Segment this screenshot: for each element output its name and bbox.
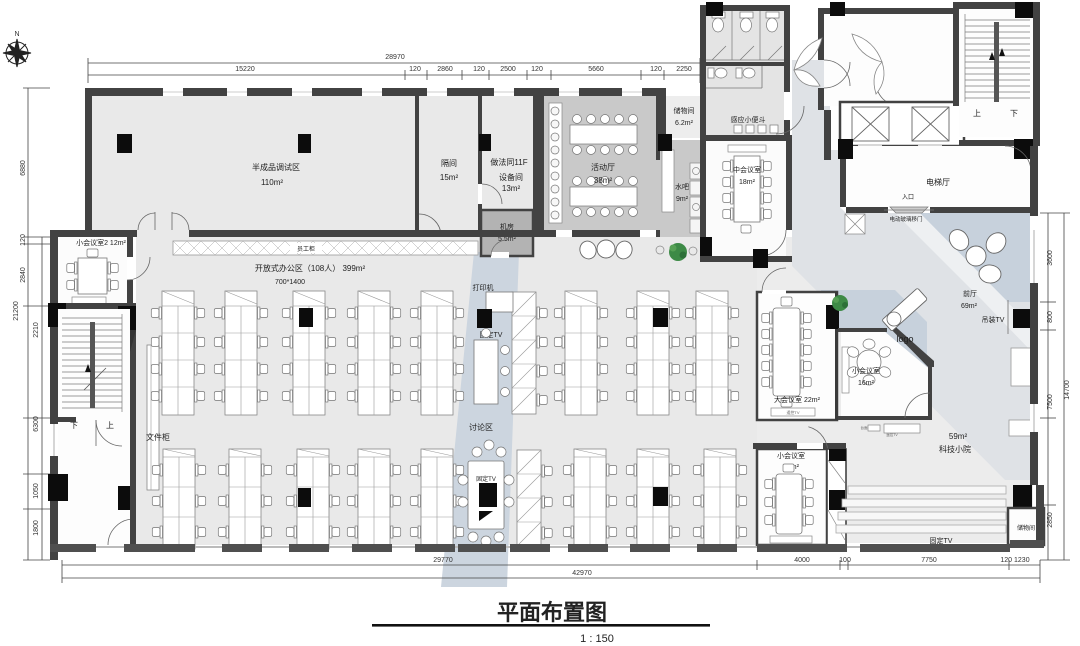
svg-text:110m²: 110m² [261,178,283,187]
svg-text:69m²: 69m² [961,303,978,310]
svg-text:7750: 7750 [921,557,937,564]
svg-text:电梯厅: 电梯厅 [926,177,950,187]
svg-text:做法同11F: 做法同11F [490,157,527,167]
svg-text:中会议室: 中会议室 [733,165,761,174]
svg-text:大会议室 22m²: 大会议室 22m² [774,395,821,404]
svg-text:7500: 7500 [1047,394,1054,410]
svg-text:设备间: 设备间 [499,172,523,182]
svg-text:固定TV: 固定TV [930,536,953,545]
svg-text:29770: 29770 [433,557,453,564]
svg-text:入口: 入口 [902,194,914,201]
svg-text:2250: 2250 [676,66,692,73]
svg-text:38m²: 38m² [594,176,613,185]
svg-text:13m²: 13m² [502,184,521,193]
svg-text:2210: 2210 [33,322,40,338]
svg-text:9m²: 9m² [676,196,689,203]
svg-text:800: 800 [1047,311,1054,323]
svg-text:机房: 机房 [500,222,514,231]
svg-text:开放式办公区（108人） 399m²: 开放式办公区（108人） 399m² [255,263,366,273]
svg-text:半成品调试区: 半成品调试区 [252,162,300,172]
svg-text:700*1400: 700*1400 [275,279,305,286]
svg-text:吊装TV: 吊装TV [982,315,1005,324]
svg-text:固定TV: 固定TV [476,475,496,483]
svg-text:遥控TV: 遥控TV [886,432,898,437]
svg-text:5660: 5660 [588,66,604,73]
svg-text:平面布置图: 平面布置图 [497,600,607,625]
svg-text:遥控TV: 遥控TV [786,409,799,415]
svg-text:小会议室: 小会议室 [777,451,805,460]
svg-text:14700: 14700 [1064,380,1071,400]
svg-text:感应小便斗: 感应小便斗 [731,115,766,124]
svg-text:讨论区: 讨论区 [469,422,493,432]
svg-text:5.5m²: 5.5m² [498,236,517,243]
svg-text:2840: 2840 [20,267,27,283]
svg-text:15220: 15220 [235,66,255,73]
svg-text:28970: 28970 [385,54,405,61]
svg-text:59m²: 59m² [949,432,968,441]
svg-text:上: 上 [973,109,981,118]
svg-text:小会议室: 小会议室 [852,366,880,375]
svg-text:logo: logo [896,334,913,344]
svg-text:科技小院: 科技小院 [939,444,971,454]
svg-text:18m²: 18m² [739,179,756,186]
svg-text:N: N [14,31,19,38]
svg-text:120: 120 [650,66,662,73]
svg-text:4000: 4000 [794,557,810,564]
svg-text:120: 120 [409,66,421,73]
svg-text:电动玻璃移门: 电动玻璃移门 [889,215,922,223]
svg-text:下: 下 [1010,109,1018,118]
svg-text:员工柜: 员工柜 [297,245,315,253]
svg-text:100: 100 [839,557,851,564]
svg-text:15m²: 15m² [440,173,459,182]
svg-text:120: 120 [473,66,485,73]
svg-text:上: 上 [106,421,114,430]
svg-text:台面: 台面 [861,425,869,430]
svg-text:120 1230: 120 1230 [1000,557,1029,564]
svg-text:1050: 1050 [33,483,40,499]
svg-text:1 : 150: 1 : 150 [580,633,614,645]
svg-text:储物间: 储物间 [674,106,695,115]
svg-text:21200: 21200 [13,301,20,321]
svg-text:2500: 2500 [500,66,516,73]
svg-text:42970: 42970 [572,570,592,577]
svg-text:隔间: 隔间 [441,159,457,168]
svg-text:小会议室2 12m²: 小会议室2 12m² [76,238,126,247]
svg-text:120: 120 [20,234,27,246]
svg-text:储物间: 储物间 [1017,524,1035,532]
svg-text:6.2m²: 6.2m² [675,120,694,127]
svg-text:2860: 2860 [437,66,453,73]
svg-text:活动厅: 活动厅 [591,162,615,172]
svg-text:6880: 6880 [20,160,27,176]
svg-text:3600: 3600 [1047,250,1054,266]
svg-text:下: 下 [70,421,78,430]
svg-text:水吧: 水吧 [675,182,689,191]
svg-text:16m²: 16m² [858,380,875,387]
svg-text:打印机: 打印机 [473,283,494,292]
svg-text:前厅: 前厅 [963,289,977,298]
svg-text:1800: 1800 [33,520,40,536]
svg-text:2850: 2850 [1047,512,1054,528]
svg-text:6300: 6300 [33,416,40,432]
svg-text:120: 120 [531,66,543,73]
svg-text:文件柜: 文件柜 [146,432,170,442]
